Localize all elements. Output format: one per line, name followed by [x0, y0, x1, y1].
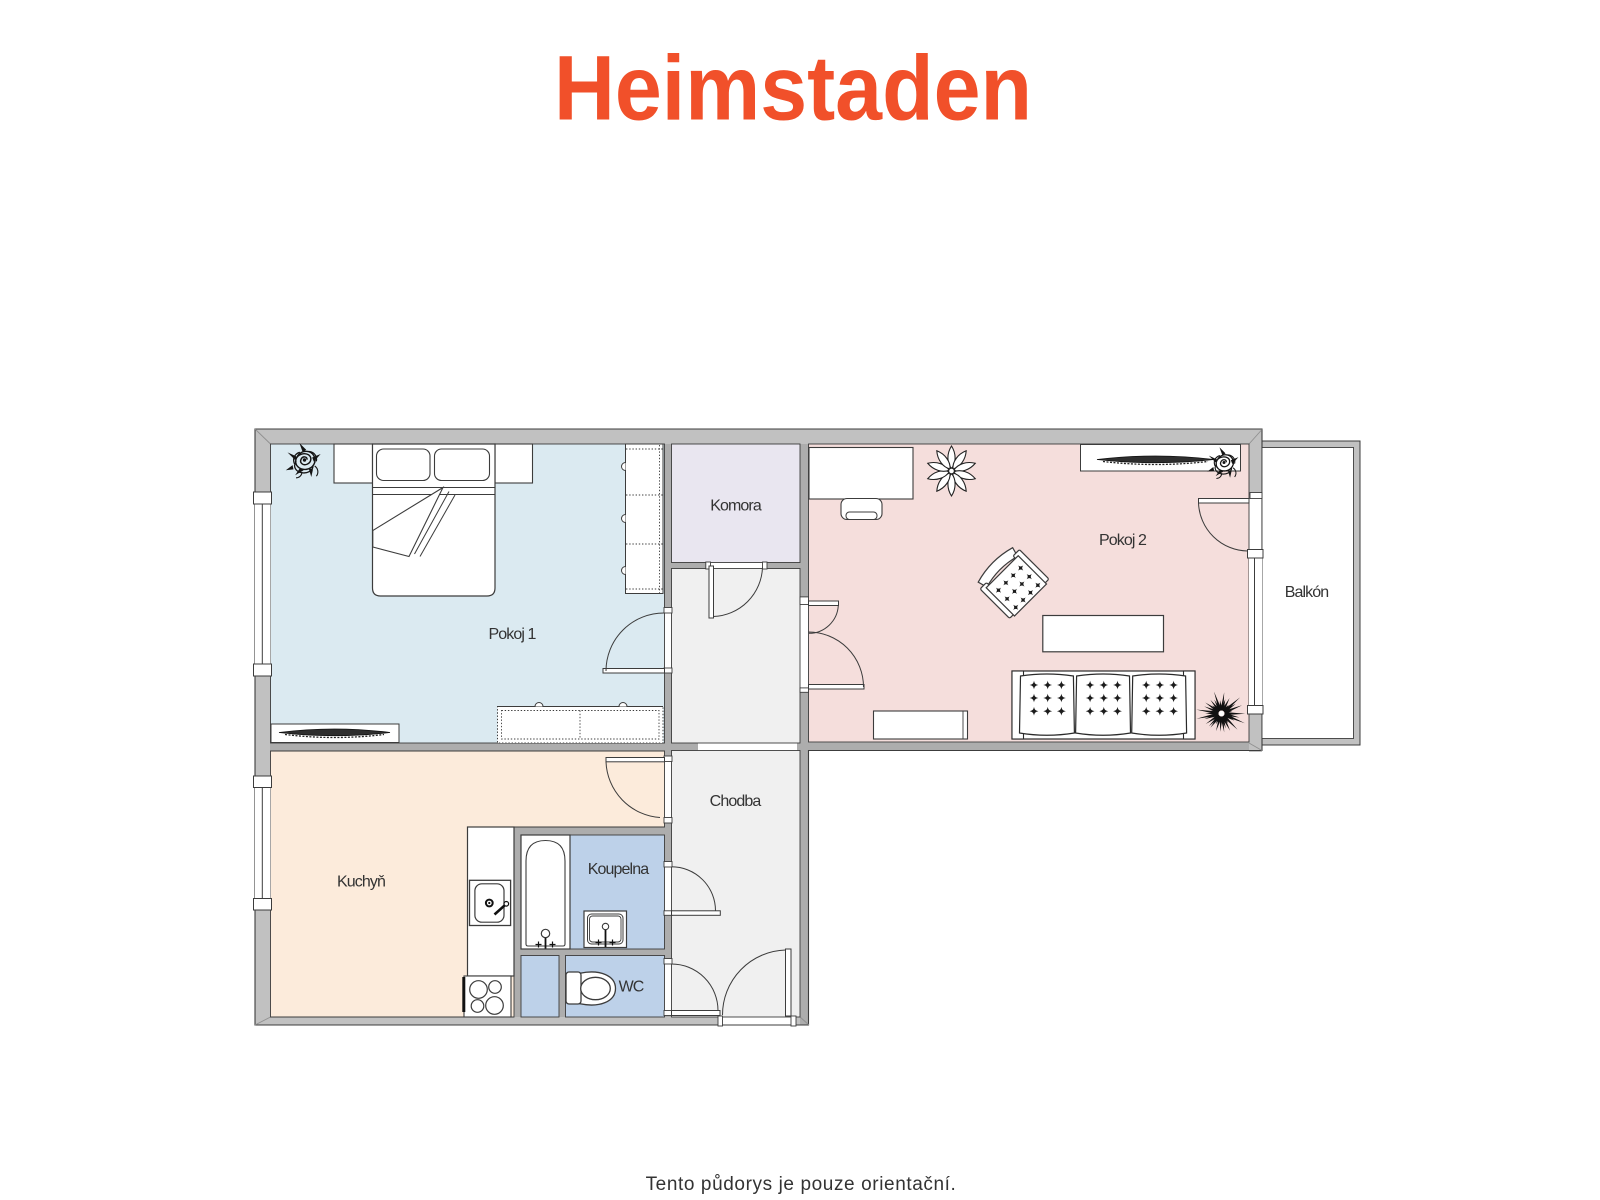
- svg-text:Kuchyň: Kuchyň: [337, 874, 385, 891]
- svg-text:Heimstaden: Heimstaden: [554, 38, 1032, 140]
- svg-text:Pokoj 2: Pokoj 2: [1099, 532, 1147, 549]
- svg-text:Tento půdorys je pouze orienta: Tento půdorys je pouze orientační.: [646, 1174, 957, 1195]
- svg-text:Balkón: Balkón: [1285, 584, 1329, 601]
- svg-text:Koupelna: Koupelna: [588, 861, 649, 878]
- svg-text:Pokoj 1: Pokoj 1: [488, 626, 536, 643]
- svg-text:WC: WC: [619, 979, 644, 996]
- svg-text:Komora: Komora: [710, 498, 762, 515]
- svg-text:Chodba: Chodba: [710, 793, 762, 810]
